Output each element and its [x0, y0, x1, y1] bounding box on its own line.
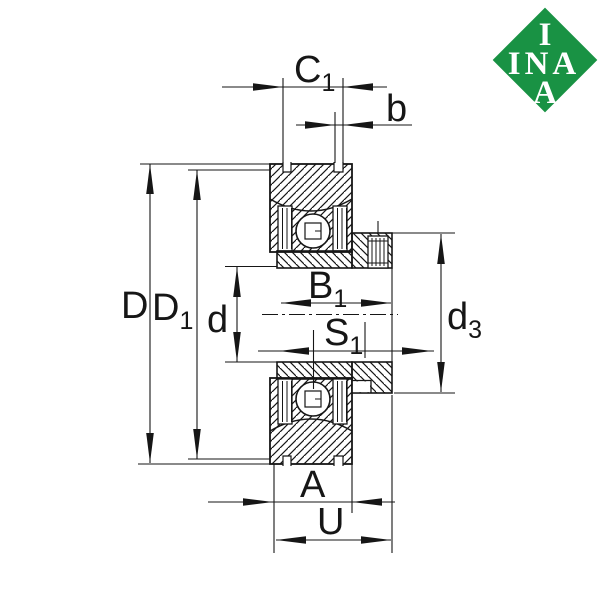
dim-label-d-outer: D	[121, 287, 148, 325]
dimension-lines	[150, 87, 441, 540]
dim-label-u: U	[317, 503, 344, 541]
locking-collar-upper	[352, 233, 392, 268]
ina-logo-row-bottom: A	[533, 75, 557, 111]
technical-drawing: I INA A C1 b D D1 d B1 S1 d3 A U	[0, 0, 600, 600]
ball-upper	[296, 214, 330, 248]
dim-label-b1: B1	[308, 267, 347, 305]
dim-label-d-bore: d	[207, 301, 228, 339]
dim-label-c1: C1	[294, 51, 335, 89]
bearing-lower-section	[270, 362, 392, 466]
dim-label-d3: d3	[447, 298, 482, 336]
bearing-upper-section	[270, 162, 392, 268]
ina-logo: I INA A	[493, 8, 598, 113]
dim-label-s1: S1	[324, 314, 363, 352]
locking-collar-lower	[352, 362, 392, 393]
dim-label-b: b	[386, 90, 407, 128]
dim-label-a: A	[300, 466, 325, 504]
dim-label-d1: D1	[152, 289, 193, 327]
